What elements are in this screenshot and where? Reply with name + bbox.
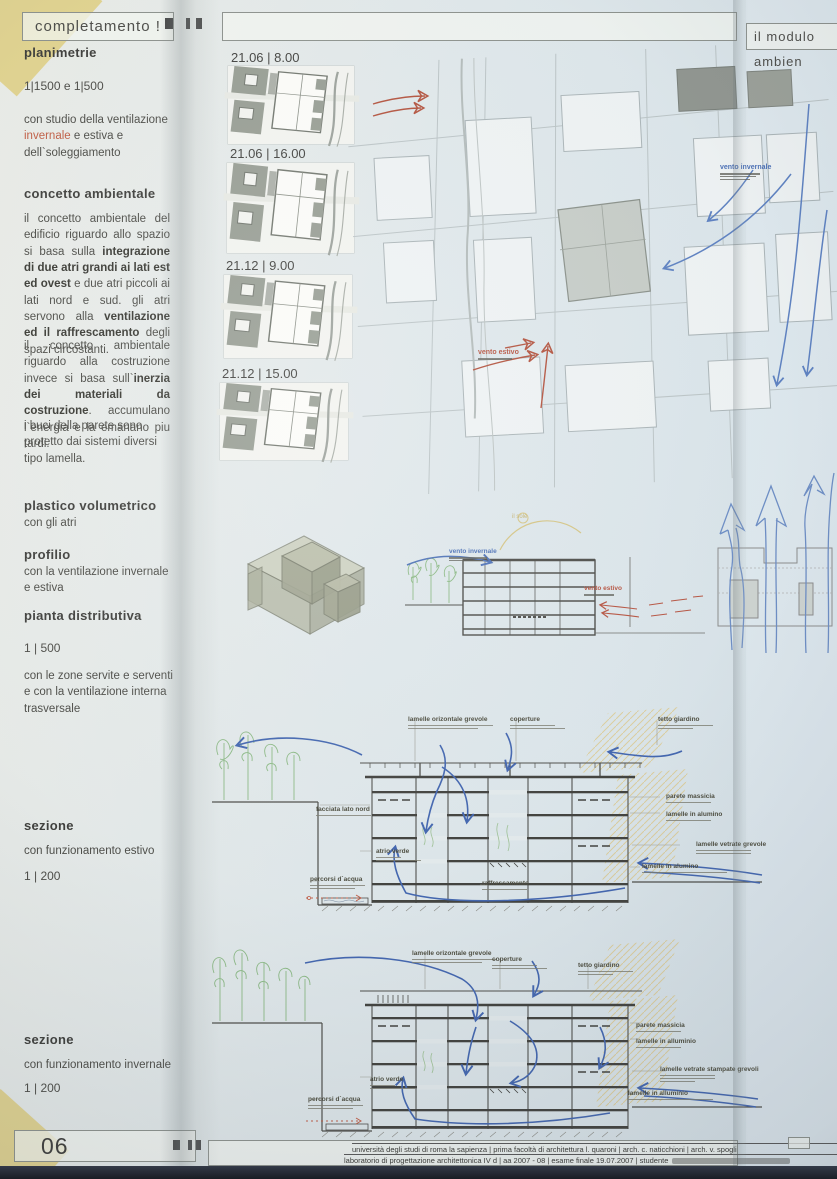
annotation-text: tetto giardino: [578, 962, 620, 969]
page-number-box: 06: [14, 1130, 196, 1162]
annotation-text: parete massicia: [666, 793, 715, 800]
annotation-text: lamelle vetrate grevole: [696, 841, 766, 848]
summer-wind-label-profile: vento estivo: [584, 585, 622, 596]
section-heading-pianta: pianta distributiva: [24, 608, 142, 623]
scale-planimetrie: 1|1500 e 1|500: [24, 78, 174, 95]
photo-bottom-edge: [0, 1166, 837, 1179]
fine-print-line: [720, 176, 756, 177]
trees: [217, 732, 300, 800]
fine-print-line: [584, 594, 614, 595]
sun-path-icon: [500, 521, 581, 550]
concetto-paragraph-3: i buci della parete sono protetto dai si…: [24, 418, 174, 467]
page-number: 06: [41, 1133, 69, 1159]
sezione-invernale-sub: con funzionamento invernale: [24, 1057, 174, 1073]
thumbnail-label-2: 21.06 | 16.00: [230, 146, 306, 161]
annotation-text: parete massicia: [636, 1022, 685, 1029]
annotation-tetto-giardino: tetto giardino: [658, 716, 713, 729]
fine-print-line: [510, 725, 555, 727]
annotation-text: lamelle in alluminio: [636, 1038, 696, 1045]
annotation-text: lamelle in alumino: [666, 811, 722, 818]
section-heading-sezione-invernale: sezione: [24, 1032, 74, 1047]
annotation-lamelle-alumino-1: lamelle in alumino: [666, 811, 722, 821]
thumbnail-plan-1: [228, 66, 354, 144]
annotation-text: lamelle orizontale grevole: [408, 716, 487, 723]
section-heading-profilio: profilio: [24, 547, 70, 562]
trees: [408, 558, 456, 603]
fine-print-line: [370, 1085, 395, 1087]
fine-print-line: [492, 968, 547, 970]
fine-print-line: [376, 857, 401, 859]
fine-print-line: [696, 850, 751, 852]
header-center-box: [222, 12, 737, 41]
fine-print-line: [310, 885, 365, 887]
fine-print-line: [408, 728, 478, 730]
annotation-raffrescamento: raffrescamento: [482, 880, 529, 890]
thumbnail-label-3: 21.12 | 9.00: [226, 258, 294, 273]
text-run: con studio della ventilazione: [24, 114, 168, 126]
fine-print-line: [510, 728, 565, 730]
sun-label: il sole: [512, 513, 527, 521]
divider-square-icon: [196, 1140, 201, 1150]
fine-print-line: [642, 872, 727, 874]
planimetrie-description: con studio della ventilazione invernale …: [24, 112, 174, 161]
annotation-text: percorsi d`acqua: [310, 876, 362, 883]
site-plan-drawing: [355, 52, 837, 485]
annotation-lamelle-alluminio-2w: lamelle in alluminio: [628, 1090, 713, 1100]
scale-pianta: 1 | 500: [24, 640, 174, 657]
divider-square-icon: [186, 18, 190, 29]
fine-print-line: [660, 1078, 715, 1080]
section-heading-concetto: concetto ambientale: [24, 186, 155, 201]
trees: [213, 950, 310, 1021]
annotation-lamelle-alluminio-1w: lamelle in alluminio: [636, 1038, 696, 1048]
scale-sezione-estiva: 1 | 200: [24, 868, 174, 885]
poster-photo: completamento ! il modulo ambien planime…: [0, 0, 837, 1179]
footer-text: laboratorio di progettazione architetton…: [344, 1156, 668, 1165]
profilio-sub: con la ventilazione invernale e estiva: [24, 564, 174, 597]
profile-building: [405, 557, 705, 635]
wind-label-text: vento estivo: [584, 585, 622, 592]
summer-wind-arrows: [601, 596, 703, 617]
scale-sezione-invernale: 1 | 200: [24, 1080, 174, 1097]
annotation-text: coperture: [492, 956, 522, 963]
annotation-text: atrio verde: [370, 1076, 403, 1083]
illegible-text-smudge: [672, 1158, 790, 1164]
header-left-box: completamento !: [22, 12, 174, 41]
annotation-text: raffrescamento: [482, 880, 529, 887]
building-section: [360, 991, 642, 1129]
pianta-sub: con le zone servite e serventi e con la …: [24, 668, 174, 717]
section-heading-planimetrie: planimetrie: [24, 45, 97, 60]
footer-credit-line-1: università degli studi di roma la sapien…: [352, 1143, 837, 1155]
annotation-text: lamelle orizontale grevole: [412, 950, 491, 957]
annotation-lamelle-orizontale-w: lamelle orizontale grevole: [412, 950, 497, 963]
thumbnail-plan-3: [224, 275, 352, 358]
fine-print-line: [660, 1075, 715, 1077]
fine-print-line: [492, 965, 537, 967]
annotation-text: facciata lato nord: [316, 806, 370, 813]
footer-credit-line-2: laboratorio di progettazione architetton…: [344, 1154, 837, 1166]
annotation-percorsi-acqua: percorsi d`acqua: [310, 876, 365, 889]
annotation-lamelle-vetrate-w: lamelle vetrate stampate grevoli: [660, 1066, 759, 1082]
divider-square-icon: [173, 1140, 180, 1150]
fine-print-line: [308, 1105, 363, 1107]
fine-print-line: [308, 1108, 353, 1110]
pianta-distributiva-drawing: [702, 468, 837, 658]
annotation-text: tetto giardino: [658, 716, 700, 723]
annotation-parete-massicia-w: parete massicia: [636, 1022, 685, 1032]
annotation-text: atrio verde: [376, 848, 409, 855]
annotation-tetto-giardino-w: tetto giardino: [578, 962, 633, 975]
annotation-text: lamelle in alluminio: [628, 1090, 688, 1097]
fine-print-line: [376, 860, 421, 862]
divider-square-icon: [188, 1140, 192, 1150]
fine-print-line: [578, 974, 613, 976]
small-corner-tag: [788, 1137, 810, 1149]
profile-section-drawing: [405, 505, 705, 655]
fine-print-line: [478, 358, 512, 359]
fine-print-line: [658, 725, 713, 727]
header-right-box: il modulo ambien: [746, 23, 837, 50]
poster-title: completamento !: [35, 18, 161, 35]
annotation-text: lamelle in alumino: [642, 863, 698, 870]
fine-print-line: [660, 1081, 695, 1083]
fine-print-line: [666, 802, 711, 804]
wind-label-text: vento estivo: [478, 349, 519, 356]
concetto-paragraph-1: il concetto ambientale del edificio rigu…: [24, 211, 170, 358]
section-heading-sezione-estiva: sezione: [24, 818, 74, 833]
fine-print-line: [449, 560, 483, 561]
fine-print-line: [636, 1047, 681, 1049]
annotation-atrio-verde: atrio verde: [376, 848, 421, 861]
sezione-estiva-sub: con funzionamento estivo: [24, 843, 174, 859]
winter-wind-label-plan: vento invernale: [720, 164, 771, 180]
annotation-parete-massicia: parete massicia: [666, 793, 715, 803]
fine-print-line: [482, 889, 527, 891]
annotation-lamelle-vetrate: lamelle vetrate grevole: [696, 841, 766, 854]
plastico-model-drawing: [228, 522, 380, 647]
annotation-text: percorsi d`acqua: [308, 1096, 360, 1103]
fine-print-line: [628, 1099, 713, 1101]
wind-label-text: vento invernale: [449, 548, 497, 555]
fine-print-line: [720, 179, 750, 180]
annotation-percorsi-acqua-w: percorsi d`acqua: [308, 1096, 363, 1109]
fine-print-line: [666, 820, 711, 822]
fine-print-line: [408, 725, 493, 727]
wind-label-text: vento invernale: [720, 164, 771, 171]
annotation-lamelle-orizontale: lamelle orizontale grevole: [408, 716, 493, 729]
fine-print-line: [412, 962, 482, 964]
fine-print-line: [658, 728, 693, 730]
winter-wind-label-profile: vento invernale: [449, 548, 497, 561]
annotation-lamelle-alumino-2: lamelle in alumino: [642, 863, 727, 873]
fine-print-line: [310, 888, 355, 890]
thumbnail-label-1: 21.06 | 8.00: [231, 50, 299, 65]
divider-square-icon: [196, 18, 202, 29]
fine-print-line: [370, 1088, 415, 1090]
fine-print-line: [720, 173, 760, 174]
thumbnail-plan-2: [227, 163, 354, 253]
fine-print-line: [578, 971, 633, 973]
annotation-atrio-verde-w: atrio verde: [370, 1076, 415, 1089]
thumbnail-plan-4: [220, 383, 348, 460]
fine-print-line: [449, 557, 487, 558]
annotation-text: coperture: [510, 716, 540, 723]
divider-square-icon: [165, 18, 173, 29]
text-run-accent: invernale: [24, 130, 71, 142]
section-heading-plastico: plastico volumetrico: [24, 498, 156, 513]
annotation-text: lamelle vetrate stampate grevoli: [660, 1066, 759, 1073]
thumbnail-label-4: 21.12 | 15.00: [222, 366, 298, 381]
annotation-coperture-w: coperture: [492, 956, 547, 969]
annotation-facciata-nord: facciata lato nord: [316, 806, 371, 816]
fine-print-line: [412, 959, 497, 961]
fine-print-line: [696, 853, 751, 855]
plastico-sub: con gli atri: [24, 515, 174, 531]
summer-wind-label-plan: vento estivo: [478, 349, 519, 360]
fine-print-line: [636, 1031, 681, 1033]
fine-print-line: [316, 815, 371, 817]
annotation-coperture: coperture: [510, 716, 565, 729]
